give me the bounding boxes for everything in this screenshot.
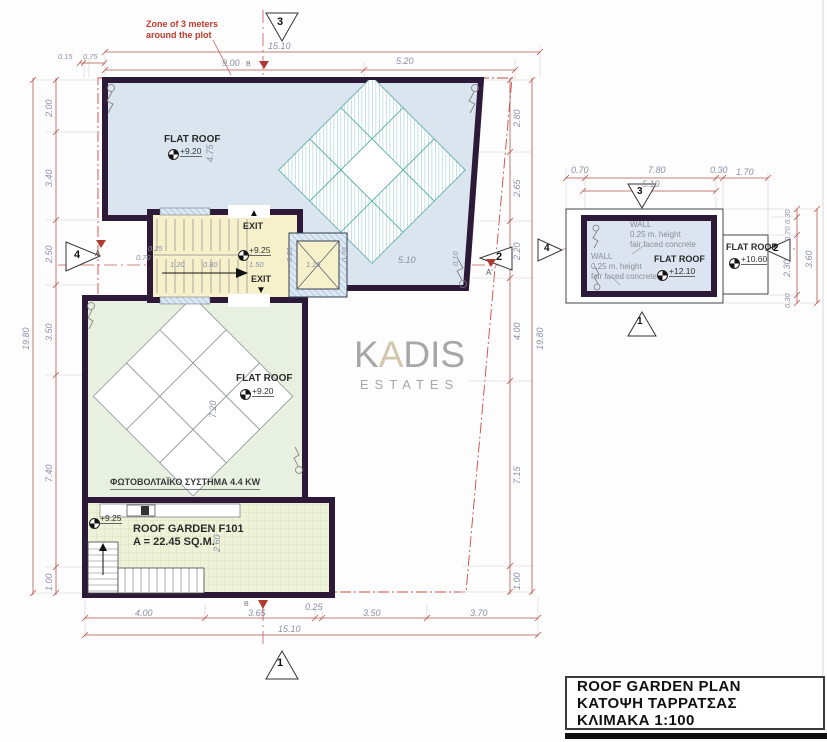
sp-section-marker-3: 3 <box>637 187 643 197</box>
sp-section-marker-2: 2 <box>773 244 779 254</box>
watermark-a: A <box>379 334 404 375</box>
dim-left-5: 1.00 <box>45 573 54 591</box>
sp-flat-roof-ext-level: +10.60 <box>741 254 767 265</box>
sp-dim-right-1: 0.70 <box>784 226 792 241</box>
dim-right-total: 19.80 <box>536 327 545 350</box>
dim-right-1: 2.65 <box>513 179 522 197</box>
dim-tiny-a: 0.15 <box>58 53 73 61</box>
dim-bottom-3: 3.50 <box>363 609 381 618</box>
exit-bottom-label: EXIT <box>251 275 271 284</box>
benchmark-icon <box>238 250 249 261</box>
section-label-a: A <box>95 250 100 258</box>
sp-dim-top-2: 0.30 <box>710 166 728 175</box>
dim-bottom-total: 15.10 <box>278 625 301 634</box>
benchmark-icon <box>657 270 668 281</box>
dim-left-4: 7.40 <box>45 464 54 482</box>
dim-top-total: 15.10 <box>268 42 291 51</box>
stair-core <box>150 205 300 307</box>
section-marker-1: 1 <box>277 658 283 669</box>
title-block: ROOF GARDEN PLAN ΚΑΤΟΨΗ ΤΑΡΡΑΤΣΑΣ ΚΛΙΜΑΚ… <box>565 676 825 730</box>
sp-dim-top-1: 7.80 <box>648 166 666 175</box>
benchmark-icon <box>89 518 100 529</box>
watermark-dis: DIS <box>403 334 465 375</box>
title-line3: ΚΛΙΜΑΚΑ 1:100 <box>577 712 823 729</box>
dim-h-upper: 4.75 <box>206 144 215 162</box>
dim-stair-b: 0.70 <box>136 254 151 262</box>
flat-roof-upper-label: FLAT ROOF <box>164 135 220 145</box>
dim-left-2: 2.50 <box>45 245 54 263</box>
title-line2: ΚΑΤΟΨΗ ΤΑΡΡΑΤΣΑΣ <box>577 695 823 712</box>
pv-system-label: ΦΩΤΟΒΟΛΤΑΪΚΟ ΣΥΣΤΗΜΑ 4.4 KW <box>110 477 260 490</box>
watermark-sub: ESTATES <box>354 377 465 392</box>
title-block-bar <box>565 733 827 739</box>
sp-dim-top-0: 0.70 <box>571 166 589 175</box>
dim-sky-c: 0.20 <box>341 247 349 262</box>
sp-section-marker-1: 1 <box>637 317 643 327</box>
dim-stair-d: 0.80 <box>203 261 218 269</box>
sp-dim-right-2: 2.30 <box>783 259 792 277</box>
dim-bottom-0: 4.00 <box>135 609 153 618</box>
dim-bottom-1: 3.65 <box>248 609 266 618</box>
wall-note-2-line3: fair faced concrete <box>591 273 657 281</box>
wall-note-1-line2: 0.25 m. height <box>630 231 681 239</box>
dim-run: 5.10 <box>398 256 416 265</box>
sp-flat-roof-ext-label: FLAT ROOF <box>726 243 777 252</box>
wall-note-2-line2: 0.25 m. height <box>591 263 642 271</box>
zone-note-line1: Zone of 3 meters <box>146 20 218 29</box>
section-label-a-prime: A' <box>486 269 493 277</box>
section-marker-3: 3 <box>277 17 283 28</box>
sp-dim-inner: 5.10 <box>642 180 660 189</box>
section-marker-4: 4 <box>74 250 80 261</box>
dim-h-pv: 7.20 <box>209 400 218 418</box>
dim-right-4: 7.15 <box>513 466 522 484</box>
sp-dim-right-0: 0.30 <box>784 209 792 224</box>
sp-dim-right-3: 0.30 <box>784 293 792 308</box>
dim-sky-b: 1.25 <box>306 261 321 269</box>
sp-section-marker-4: 4 <box>544 244 550 254</box>
roof-garden-name: ROOF GARDEN F101 <box>133 524 244 535</box>
zone-note-line2: around the plot <box>146 31 212 40</box>
dim-bottom-4: 3.70 <box>470 609 488 618</box>
drawing-sheet: Zone of 3 meters around the plot 15.10 9… <box>0 0 827 742</box>
dim-end: 0.10 <box>452 251 460 266</box>
flat-roof-lower-label: FLAT ROOF <box>236 374 292 384</box>
section-marker-2: 2 <box>496 252 502 263</box>
sp-dim-top-3: 1.70 <box>736 168 754 177</box>
garden-level: +9.25 <box>100 513 122 524</box>
dim-left-0: 2.00 <box>45 99 54 117</box>
sp-flat-roof-main-level: +12.10 <box>669 266 695 277</box>
dim-stair-a: 0.25 <box>148 245 163 253</box>
watermark-brand: KADIS <box>354 336 465 373</box>
stair-level: +9.25 <box>249 245 271 256</box>
watermark-k: K <box>354 334 379 375</box>
exit-down-arrow-icon: ▼ <box>256 286 266 296</box>
dim-left-3: 3.50 <box>45 323 54 341</box>
dim-top-b: 5.20 <box>396 57 414 66</box>
dim-stair-c: 1.20 <box>170 261 185 269</box>
dim-right-0: 2.80 <box>513 109 522 127</box>
wall-note-1-line3: fair faced concrete <box>630 241 696 249</box>
dim-right-3: 4.00 <box>513 322 522 340</box>
dim-bottom-2: 0.25 <box>305 603 323 612</box>
benchmark-icon <box>240 389 251 400</box>
watermark: KADIS ESTATES <box>354 336 465 392</box>
grid-label-b-bottom: B <box>244 601 249 608</box>
dim-sky-a: 0.20 <box>286 247 294 262</box>
dim-left-1: 3.40 <box>45 169 54 187</box>
benchmark-icon <box>168 149 179 160</box>
dim-right-5: 1.00 <box>513 572 522 590</box>
dim-stair-e: 1.50 <box>249 261 264 269</box>
sp-dim-right-total: 3.60 <box>805 250 814 268</box>
sp-flat-roof-main-label: FLAT ROOF <box>654 255 705 264</box>
wall-note-2-line1: WALL <box>591 253 613 261</box>
flat-roof-upper-level: +9.20 <box>180 146 202 157</box>
benchmark-icon <box>729 258 740 269</box>
exit-up-arrow-icon: ▲ <box>249 209 259 219</box>
dim-tiny-b: 0.75 <box>83 53 98 61</box>
exit-top-label: EXIT <box>243 222 263 231</box>
grid-label-b-top: B <box>246 61 251 68</box>
dim-top-a: 9.00 <box>222 59 240 68</box>
flat-roof-lower-level: +9.20 <box>252 386 274 397</box>
dim-left-total: 19.80 <box>22 327 31 350</box>
roof-garden-area: A = 22.45 SQ.M. <box>133 537 215 548</box>
title-line1: ROOF GARDEN PLAN <box>577 678 823 695</box>
wall-note-1-line1: WALL <box>630 221 652 229</box>
dim-right-2: 2.20 <box>513 242 522 260</box>
